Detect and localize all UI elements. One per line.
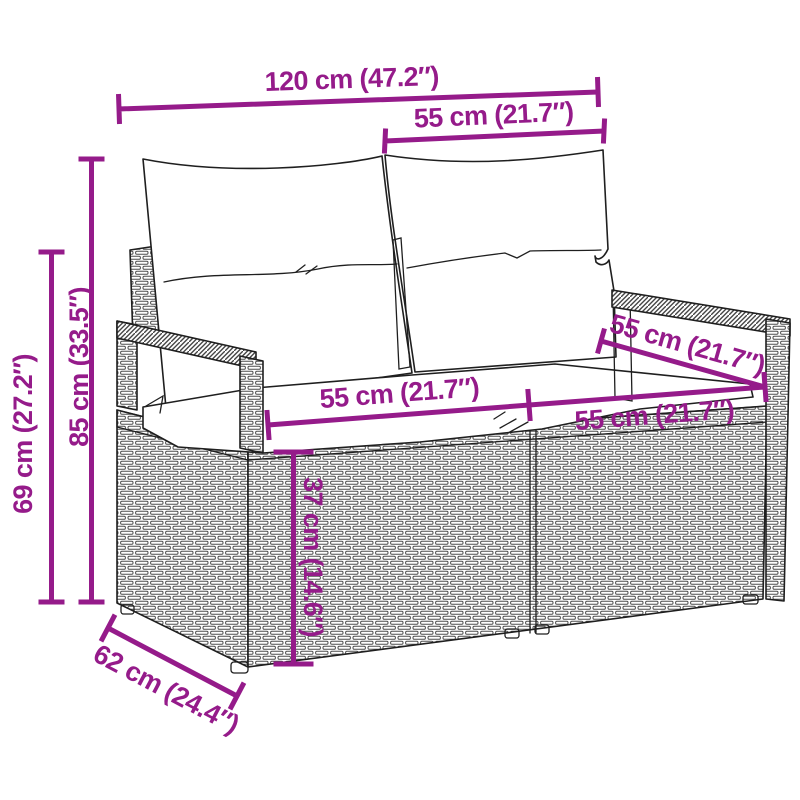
dim-total-height: 85 cm (33.5″) (64, 159, 105, 602)
back-cushion-left (143, 156, 412, 408)
dim-armrest-height: 69 cm (27.2″) (8, 252, 65, 602)
dim-seat-height-label: 37 cm (14.6″) (298, 477, 328, 637)
right-corner-post (766, 319, 790, 601)
dim-back-cushion-width-label: 55 cm (21.7″) (413, 96, 574, 133)
dim-armrest-height-label: 69 cm (27.2″) (8, 354, 38, 514)
dim-total-width-label: 120 cm (47.2″) (264, 61, 439, 97)
sofa-dimension-diagram: 120 cm (47.2″) 55 cm (21.7″) 85 cm (33.5… (0, 0, 800, 800)
dimension-diagram-page: 120 cm (47.2″) 55 cm (21.7″) 85 cm (33.5… (0, 0, 800, 800)
left-arm-front-post (240, 356, 263, 453)
dim-armrest-height-line (39, 252, 65, 602)
dim-total-height-label: 85 cm (33.5″) (64, 287, 94, 447)
back-cushion-right (385, 150, 616, 372)
dim-back-cushion-width: 55 cm (21.7″) (384, 96, 604, 153)
